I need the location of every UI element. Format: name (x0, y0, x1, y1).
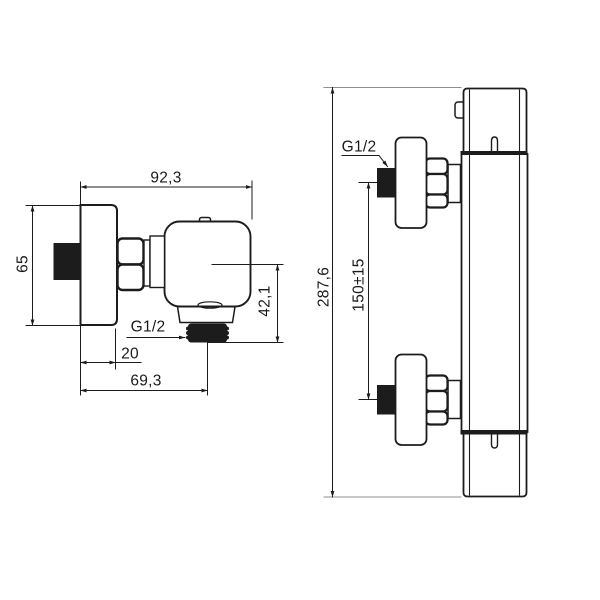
outlet-neck (178, 307, 236, 323)
bar-body (462, 154, 528, 432)
side-view-drawing (26, 181, 283, 395)
thread-leader-front (342, 156, 388, 167)
dim-connection-spacing: 150±15 (351, 258, 367, 311)
inlet-nipple-side (54, 243, 81, 280)
adapter-top (448, 165, 461, 203)
dim-total-height: 287,6 (316, 267, 332, 307)
bottom-connection (377, 355, 461, 446)
bar-divider-top (461, 151, 528, 155)
bar-divider-bottom (461, 430, 528, 435)
top-connection (377, 138, 461, 229)
thread-label-side: G1/2 (131, 319, 166, 335)
bar-slot-top (492, 137, 498, 151)
escutcheon-side (81, 205, 118, 325)
adapter-side (144, 236, 165, 288)
hex-nut-side (118, 239, 144, 291)
bar-slot-bottom (492, 435, 498, 449)
escutcheon-bottom (396, 355, 427, 446)
inlet-nipple-top (377, 168, 396, 198)
outlet-thread (186, 324, 229, 343)
hex-nut-bottom (426, 376, 448, 425)
dim-escutcheon-height: 65 (15, 255, 31, 273)
thread-label-front: G1/2 (342, 139, 377, 155)
dim-outlet-offset: 69,3 (130, 373, 161, 389)
dim-escutcheon-depth: 20 (121, 346, 139, 362)
technical-drawing-page: { "drawing": { "type": "technical-dimens… (0, 0, 600, 600)
dim-outlet-drop: 42,1 (257, 285, 273, 316)
hex-nut-top (426, 159, 448, 208)
inlet-nipple-bottom (377, 385, 396, 415)
dim-total-width: 92,3 (150, 170, 181, 186)
adapter-bottom (448, 381, 461, 419)
drawing-lineart (0, 0, 600, 600)
escutcheon-top (396, 138, 427, 229)
